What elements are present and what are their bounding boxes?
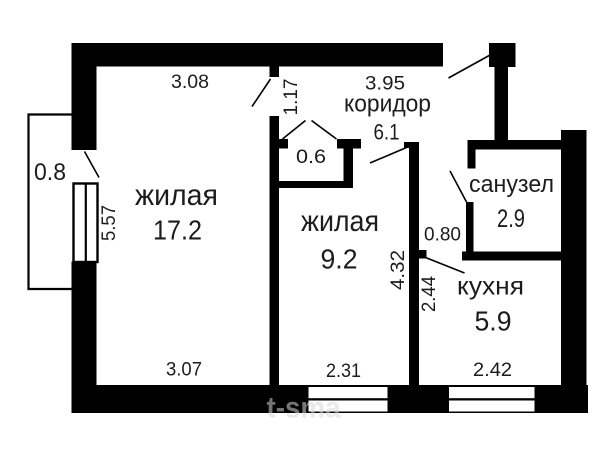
svg-text:жилая: жилая <box>301 205 379 238</box>
svg-text:3.08: 3.08 <box>171 71 209 93</box>
svg-text:0.80: 0.80 <box>424 224 461 246</box>
svg-text:t-sma: t-sma <box>267 392 341 425</box>
svg-text:2.31: 2.31 <box>326 360 361 382</box>
svg-text:0.6: 0.6 <box>296 146 326 168</box>
svg-text:4.32: 4.32 <box>387 250 409 290</box>
svg-text:17.2: 17.2 <box>153 215 202 246</box>
svg-text:1.17: 1.17 <box>280 79 302 116</box>
svg-text:3.95: 3.95 <box>365 73 405 95</box>
svg-text:2.42: 2.42 <box>473 359 512 381</box>
svg-text:9.2: 9.2 <box>321 244 358 275</box>
svg-text:0.8: 0.8 <box>34 159 66 186</box>
svg-text:5.9: 5.9 <box>475 306 512 337</box>
svg-text:2.44: 2.44 <box>418 276 440 312</box>
svg-text:6.1: 6.1 <box>374 120 400 145</box>
svg-text:жилая: жилая <box>135 179 218 212</box>
svg-text:санузел: санузел <box>469 171 554 198</box>
svg-text:5.57: 5.57 <box>98 205 120 241</box>
svg-text:кухня: кухня <box>457 273 524 301</box>
svg-text:коридор: коридор <box>344 91 431 118</box>
svg-text:2.9: 2.9 <box>497 205 525 233</box>
svg-text:3.07: 3.07 <box>166 359 202 381</box>
